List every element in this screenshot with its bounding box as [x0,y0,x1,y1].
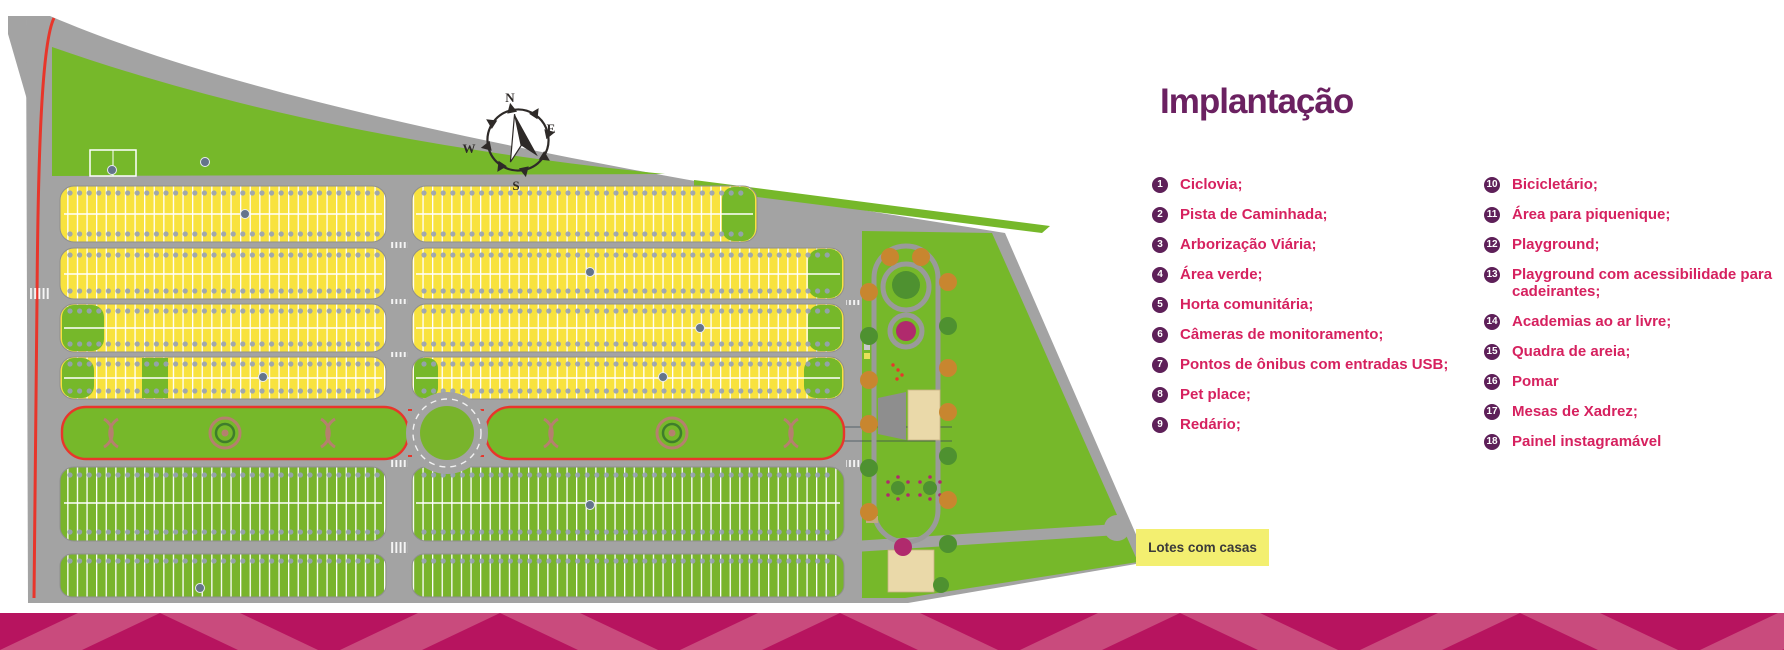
legend-item-label: Área verde; [1180,266,1263,283]
legend-number-badge: 5 [1152,297,1168,313]
legend-item-label: Mesas de Xadrez; [1512,403,1638,420]
legend-column-1: 1 Ciclovia; 2 Pista de Caminhada; 3 Arbo… [1152,176,1452,446]
legend-item-label: Academias ao ar livre; [1512,313,1671,330]
playground-sand [908,390,940,440]
legend-item-label: Pomar [1512,373,1559,390]
legend-item-10: 10 Bicicletário; [1484,176,1780,193]
legend-item-17: 17 Mesas de Xadrez; [1484,403,1780,420]
legend-number-badge: 13 [1484,267,1500,283]
legend-item-8: 8 Pet place; [1152,386,1452,403]
legend-item-label: Playground com acessibilidade para cadei… [1512,266,1780,300]
legend-item-label: Quadra de areia; [1512,343,1630,360]
legend-item-label: Pontos de ônibus com entradas USB; [1180,356,1448,373]
legend-item-label: Pista de Caminhada; [1180,206,1328,223]
legend-item-16: 16 Pomar [1484,373,1780,390]
legend-item-label: Horta comunitária; [1180,296,1313,313]
brand-chevron-band [0,613,1784,650]
compass-south-label: S [512,178,519,193]
legend-number-badge: 9 [1152,417,1168,433]
legend-item-label: Painel instagramável [1512,433,1661,450]
legend-number-badge: 11 [1484,207,1500,223]
legend-item-5: 5 Horta comunitária; [1152,296,1452,313]
legend-item-3: 3 Arborização Viária; [1152,236,1452,253]
legend-number-badge: 10 [1484,177,1500,193]
legend-number-badge: 7 [1152,357,1168,373]
legend-number-badge: 16 [1484,374,1500,390]
compass-east-label: E [547,121,556,136]
legend-number-badge: 1 [1152,177,1168,193]
legend-item-label: Bicicletário; [1512,176,1598,193]
site-plan-map: N E S W [0,0,1160,612]
legend-number-badge: 6 [1152,327,1168,343]
legend-number-badge: 15 [1484,344,1500,360]
legend-item-label: Arborização Viária; [1180,236,1316,253]
chevron-pattern [0,613,1784,650]
legend-item-7: 7 Pontos de ônibus com entradas USB; [1152,356,1452,373]
legend-number-badge: 2 [1152,207,1168,223]
legend-number-badge: 8 [1152,387,1168,403]
legend-item-2: 2 Pista de Caminhada; [1152,206,1452,223]
legend-panel: Implantação 1 Ciclovia; 2 Pista de Camin… [1132,0,1782,560]
legend-number-badge: 18 [1484,434,1500,450]
legend-item-4: 4 Área verde; [1152,266,1452,283]
legend-item-label: Ciclovia; [1180,176,1243,193]
sand-court [888,550,934,592]
site-plan-svg: N E S W [0,0,1160,612]
compass-west-label: W [463,141,476,156]
legend-number-badge: 3 [1152,237,1168,253]
legend-column-2: 10 Bicicletário; 11 Área para piquenique… [1484,176,1780,463]
legend-number-badge: 14 [1484,314,1500,330]
legend-item-label: Área para piquenique; [1512,206,1670,223]
legend-item-label: Playground; [1512,236,1600,253]
legend-number-badge: 4 [1152,267,1168,283]
roundabout [406,392,488,474]
legend-item-11: 11 Área para piquenique; [1484,206,1780,223]
legend-item-label: Câmeras de monitoramento; [1180,326,1383,343]
legend-item-14: 14 Academias ao ar livre; [1484,313,1780,330]
legend-item-label: Pet place; [1180,386,1251,403]
legend-item-1: 1 Ciclovia; [1152,176,1452,193]
legend-number-badge: 17 [1484,404,1500,420]
legend-item-6: 6 Câmeras de monitoramento; [1152,326,1452,343]
park-plaza [878,392,906,440]
page: N E S W Lotes com casas Implantação 1 Ci… [0,0,1784,650]
legend-item-13: 13 Playground com acessibilidade para ca… [1484,266,1780,300]
legend-item-15: 15 Quadra de areia; [1484,343,1780,360]
legend-number-badge: 12 [1484,237,1500,253]
compass-north-label: N [505,90,515,105]
legend-item-18: 18 Painel instagramável [1484,433,1780,450]
legend-item-9: 9 Redário; [1152,416,1452,433]
legend-item-12: 12 Playground; [1484,236,1780,253]
page-title: Implantação [1160,82,1353,122]
legend-item-label: Redário; [1180,416,1241,433]
